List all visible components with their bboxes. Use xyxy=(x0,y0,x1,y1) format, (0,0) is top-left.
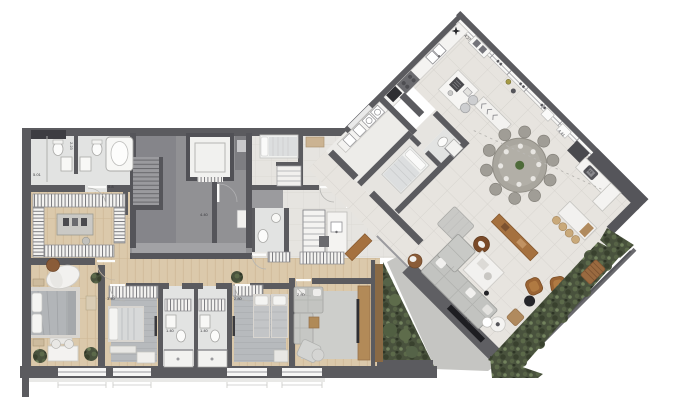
svg-text:2.23: 2.23 xyxy=(69,142,74,151)
svg-text:1.40: 1.40 xyxy=(200,328,209,333)
svg-text:2.80: 2.80 xyxy=(234,296,243,301)
svg-text:4.40: 4.40 xyxy=(200,212,209,217)
svg-text:1.40: 1.40 xyxy=(166,328,175,333)
svg-text:2.80: 2.80 xyxy=(297,292,306,297)
svg-text:5.01: 5.01 xyxy=(33,172,42,177)
svg-text:3.40: 3.40 xyxy=(107,296,116,301)
svg-text:8.8: 8.8 xyxy=(108,184,114,189)
